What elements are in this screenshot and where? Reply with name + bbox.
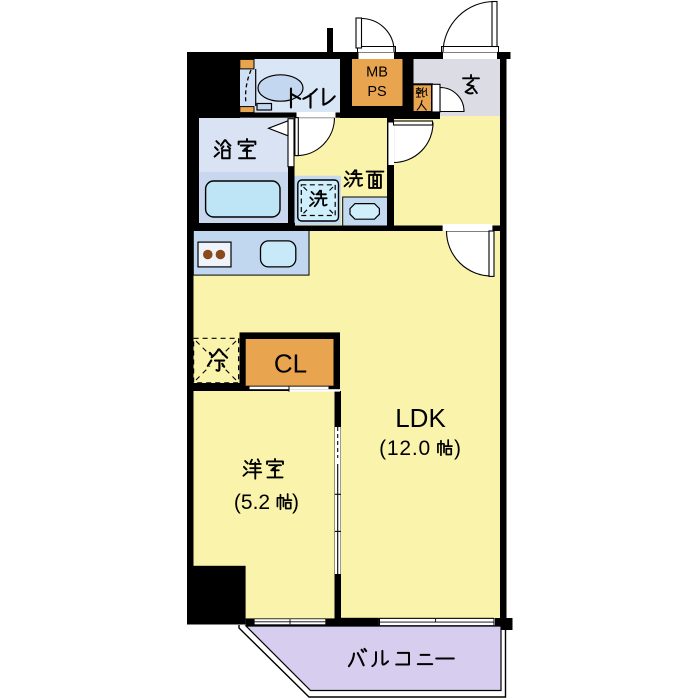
- svg-text:CL: CL: [274, 349, 307, 379]
- svg-text:(12.0: (12.0: [379, 437, 431, 460]
- svg-text:LDK: LDK: [395, 403, 446, 433]
- svg-text:): ): [292, 491, 299, 514]
- svg-text:MB: MB: [366, 65, 388, 81]
- svg-text:PS: PS: [367, 84, 386, 100]
- svg-text:): ): [454, 437, 461, 460]
- svg-text:(5.2: (5.2: [234, 491, 270, 514]
